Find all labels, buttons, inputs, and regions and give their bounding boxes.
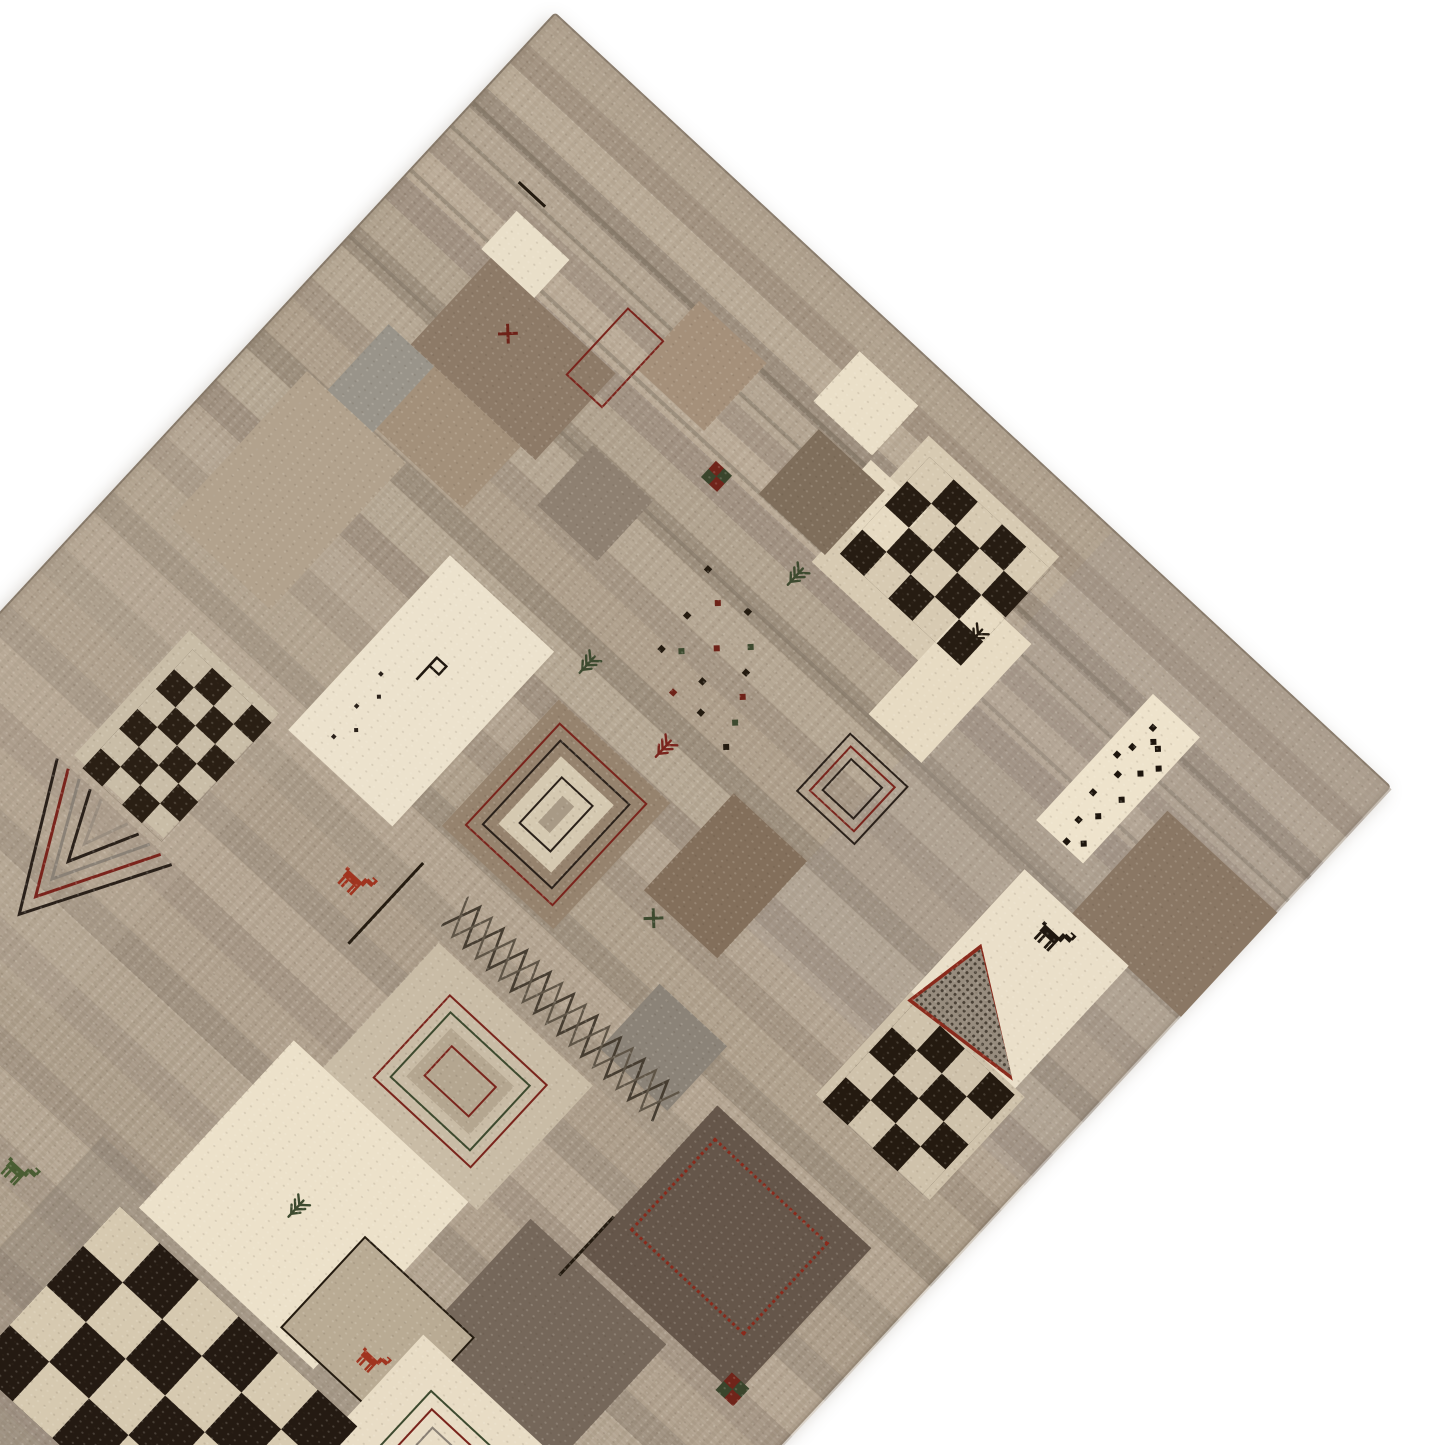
scatter-dot — [1095, 813, 1101, 819]
scatter-dot — [377, 695, 381, 699]
rug — [0, 12, 1391, 1445]
scatter-dot — [732, 720, 738, 726]
scatter-dot — [1155, 746, 1161, 752]
photo-canvas — [0, 0, 1445, 1445]
scatter-dot — [678, 648, 684, 654]
scatter-dot — [740, 694, 746, 700]
scatter-dot — [715, 600, 721, 606]
scatter-dot — [1156, 766, 1162, 772]
scatter-dot — [723, 744, 729, 750]
scatter-dot — [714, 645, 720, 651]
scatter-dot — [1119, 797, 1125, 803]
scatter-dot — [748, 644, 754, 650]
scatter-dot — [354, 728, 358, 732]
scatter-dot — [1081, 841, 1087, 847]
scatter-dot — [1137, 770, 1143, 776]
scatter-dot — [1150, 739, 1156, 745]
